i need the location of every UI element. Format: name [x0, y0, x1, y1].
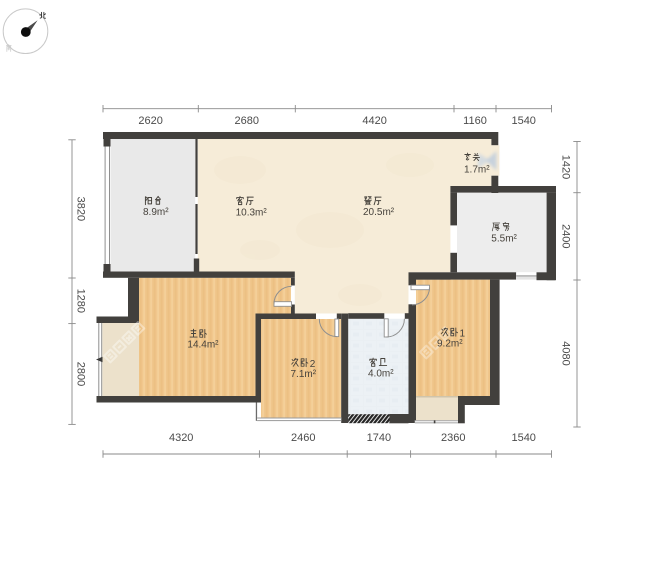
svg-text:1.7m²: 1.7m² — [464, 164, 490, 175]
svg-text:10.3m²: 10.3m² — [236, 208, 268, 219]
svg-text:4080: 4080 — [560, 341, 572, 365]
svg-text:4.0m²: 4.0m² — [368, 369, 394, 380]
svg-text:8.9m²: 8.9m² — [143, 207, 169, 218]
svg-text:2360: 2360 — [441, 432, 465, 444]
svg-text:20.5m²: 20.5m² — [363, 207, 395, 218]
svg-text:7.1m²: 7.1m² — [291, 369, 317, 380]
svg-text:4320: 4320 — [169, 432, 193, 444]
svg-text:1540: 1540 — [511, 115, 535, 127]
svg-text:1160: 1160 — [463, 115, 487, 127]
svg-text:1740: 1740 — [367, 432, 391, 444]
svg-text:5.5m²: 5.5m² — [491, 233, 517, 244]
svg-text:3820: 3820 — [75, 197, 87, 221]
svg-text:14.4m²: 14.4m² — [187, 340, 219, 351]
svg-text:2620: 2620 — [138, 115, 162, 127]
svg-text:2460: 2460 — [291, 432, 315, 444]
svg-text:2400: 2400 — [560, 224, 572, 248]
svg-text:2800: 2800 — [75, 362, 87, 386]
svg-text:1540: 1540 — [511, 432, 535, 444]
svg-text:4420: 4420 — [362, 115, 386, 127]
svg-text:1280: 1280 — [75, 289, 87, 313]
svg-text:1420: 1420 — [560, 155, 572, 179]
svg-text:2680: 2680 — [235, 115, 259, 127]
svg-text:9.2m²: 9.2m² — [437, 339, 463, 350]
